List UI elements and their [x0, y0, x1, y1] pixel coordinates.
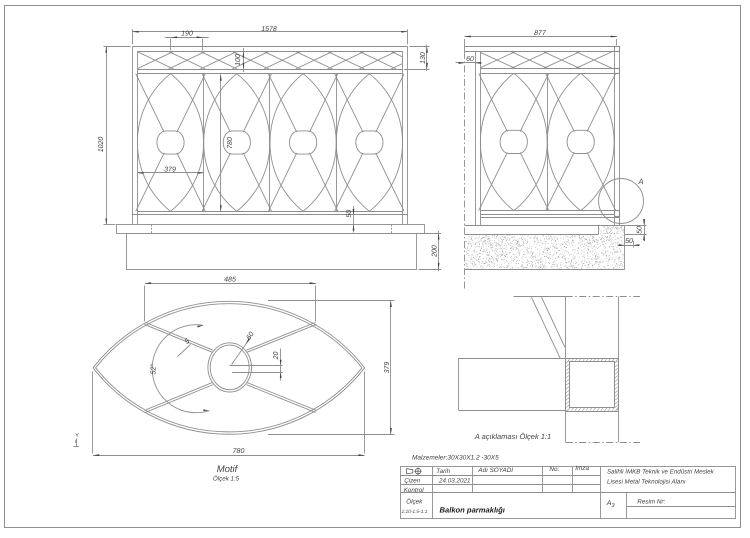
svg-text:877: 877: [534, 30, 547, 37]
svg-text:Çizen: Çizen: [404, 477, 421, 484]
svg-text:Motif: Motif: [217, 464, 239, 475]
svg-text:A: A: [638, 177, 644, 186]
svg-text:50: 50: [625, 238, 633, 245]
svg-text:780: 780: [227, 137, 234, 149]
svg-text:Tarih: Tarih: [436, 468, 450, 475]
svg-text:485: 485: [224, 277, 236, 284]
svg-text:780: 780: [233, 448, 245, 455]
svg-text:Salihli İMKB Teknik ve Endüstr: Salihli İMKB Teknik ve Endüstri Meslek: [607, 468, 715, 476]
svg-text:Balkon parmaklığı: Balkon parmaklığı: [440, 505, 505, 514]
svg-text:1578: 1578: [261, 26, 277, 33]
svg-text:Ölçek: Ölçek: [406, 498, 423, 506]
svg-text:1:10-1:5-1:1: 1:10-1:5-1:1: [402, 509, 428, 515]
svg-text:130: 130: [420, 52, 427, 64]
svg-text:200: 200: [431, 245, 438, 258]
svg-text:Malzemeler:30X30X1.2 -30X5: Malzemeler:30X30X1.2 -30X5: [412, 455, 499, 462]
svg-text:52°: 52°: [148, 363, 157, 374]
svg-text:50: 50: [637, 226, 644, 234]
svg-text:190: 190: [181, 31, 193, 38]
svg-text:A açıklaması Ölçek 1:1: A açıklaması Ölçek 1:1: [474, 432, 551, 441]
svg-text:24.03.2021: 24.03.2021: [438, 477, 471, 484]
svg-text:60: 60: [466, 56, 474, 63]
svg-text:100: 100: [235, 54, 242, 66]
svg-text:Lisesi Metal Teknolojisi Alanı: Lisesi Metal Teknolojisi Alanı: [607, 479, 686, 486]
svg-text:379: 379: [164, 166, 176, 173]
svg-text:50: 50: [346, 210, 353, 218]
svg-text:Resim Nr:: Resim Nr:: [637, 499, 665, 506]
svg-text:Imza: Imza: [575, 465, 589, 472]
svg-text:379: 379: [384, 362, 391, 374]
svg-text:Y: Y: [75, 433, 79, 439]
svg-text:No:: No:: [549, 466, 559, 473]
svg-text:Kontrol: Kontrol: [404, 487, 425, 494]
svg-text:20: 20: [273, 352, 280, 361]
svg-text:Ölçek 1:5: Ölçek 1:5: [213, 475, 240, 483]
svg-text:1020: 1020: [98, 137, 105, 153]
svg-text:Adı SOYADI: Adı SOYADI: [477, 467, 513, 474]
